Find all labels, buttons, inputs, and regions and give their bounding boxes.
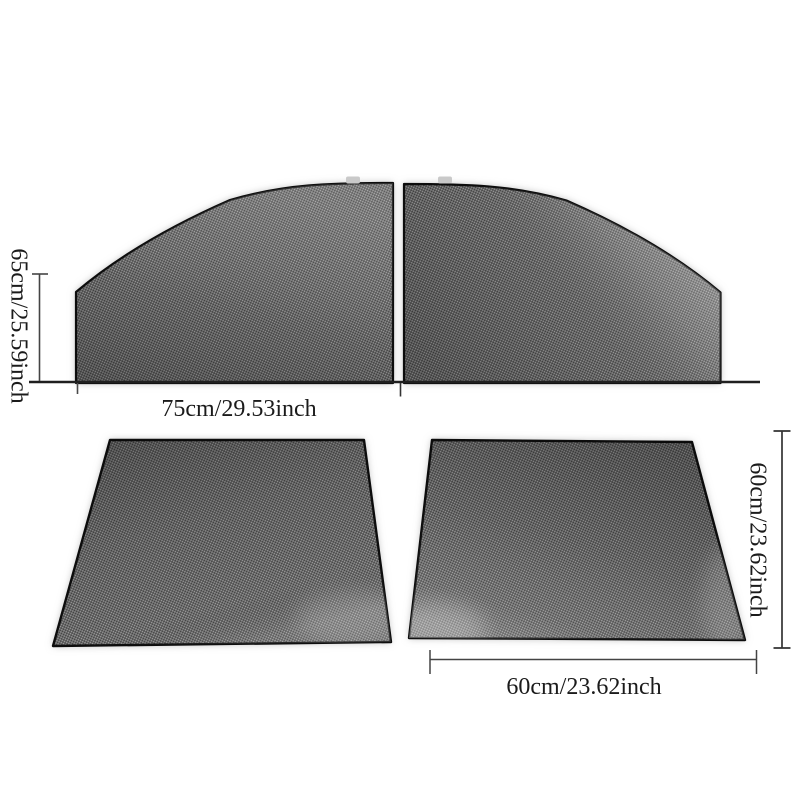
svg-text:60cm/23.62inch: 60cm/23.62inch <box>506 674 661 700</box>
svg-text:60cm/23.62inch: 60cm/23.62inch <box>745 462 771 617</box>
svg-text:75cm/29.53inch: 75cm/29.53inch <box>161 396 316 422</box>
svg-text:65cm/25.59inch: 65cm/25.59inch <box>6 248 32 403</box>
